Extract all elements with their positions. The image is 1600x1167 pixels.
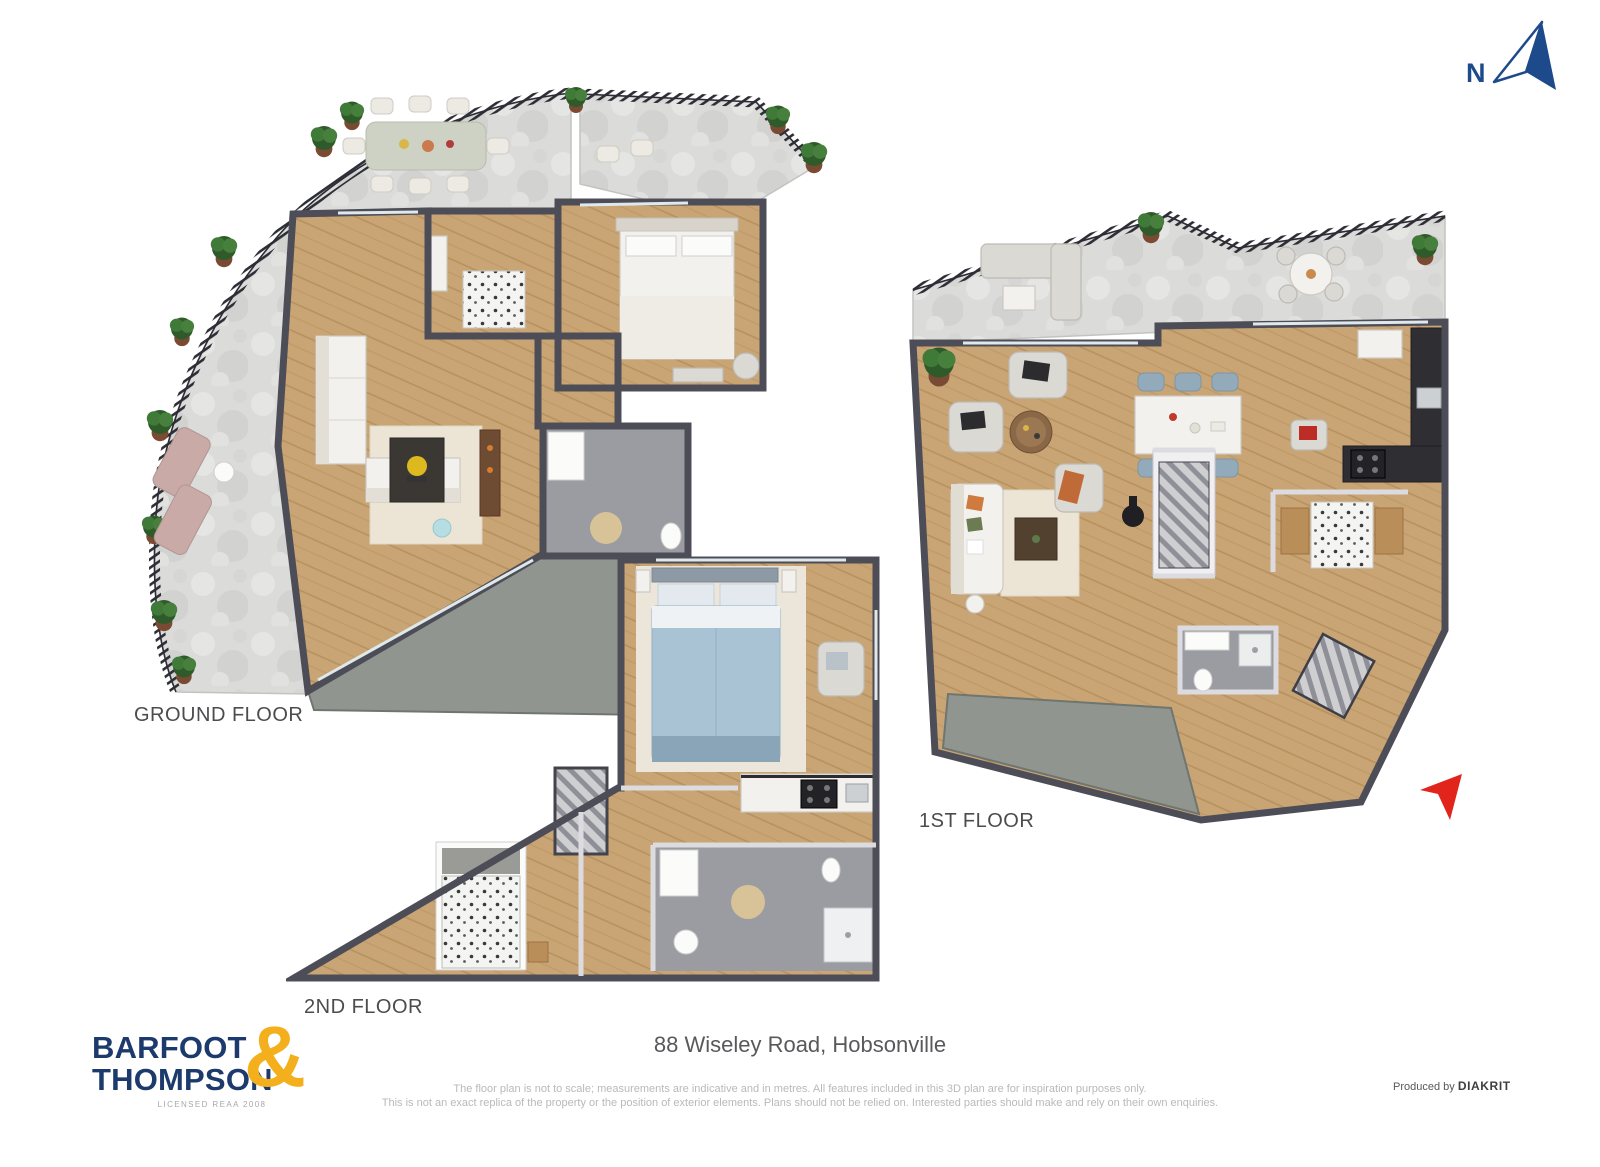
second-floor-plan: 2ND FLOOR	[286, 550, 890, 1030]
staircase	[1153, 450, 1215, 576]
compass-north-label: N	[1466, 58, 1486, 89]
second-floor-label: 2ND FLOOR	[304, 996, 423, 1019]
first-floor-label: 1ST FLOOR	[919, 810, 1034, 833]
ground-floor-label: GROUND FLOOR	[134, 704, 303, 727]
kitchenette	[741, 774, 876, 812]
produced-by-text: Produced by	[1393, 1081, 1455, 1093]
compass-arrow-icon	[1486, 18, 1564, 102]
round-coffee-table	[1010, 411, 1052, 453]
logo-line-1: BARFOOT	[92, 1032, 247, 1063]
barfoot-thompson-logo: BARFOOT THOMPSON & LICENSED REAA 2008	[92, 1028, 322, 1114]
first-floor-drawing	[903, 210, 1463, 855]
location-marker-icon	[1416, 772, 1466, 824]
logo-tagline: LICENSED REAA 2008	[122, 1100, 302, 1109]
compass: N	[1452, 18, 1572, 110]
first-floor-plan: 1ST FLOOR	[903, 210, 1463, 855]
producer-name: DIAKRIT	[1458, 1079, 1511, 1093]
producer-credit: Produced by DIAKRIT	[1393, 1079, 1511, 1093]
floorplan-poster: GROUND FLOOR	[0, 0, 1600, 1167]
second-floor-drawing	[286, 550, 890, 1030]
bathroom	[1180, 628, 1276, 692]
entry-floor	[943, 694, 1199, 814]
logo-ampersand: &	[244, 1014, 306, 1100]
side-table	[214, 462, 234, 482]
